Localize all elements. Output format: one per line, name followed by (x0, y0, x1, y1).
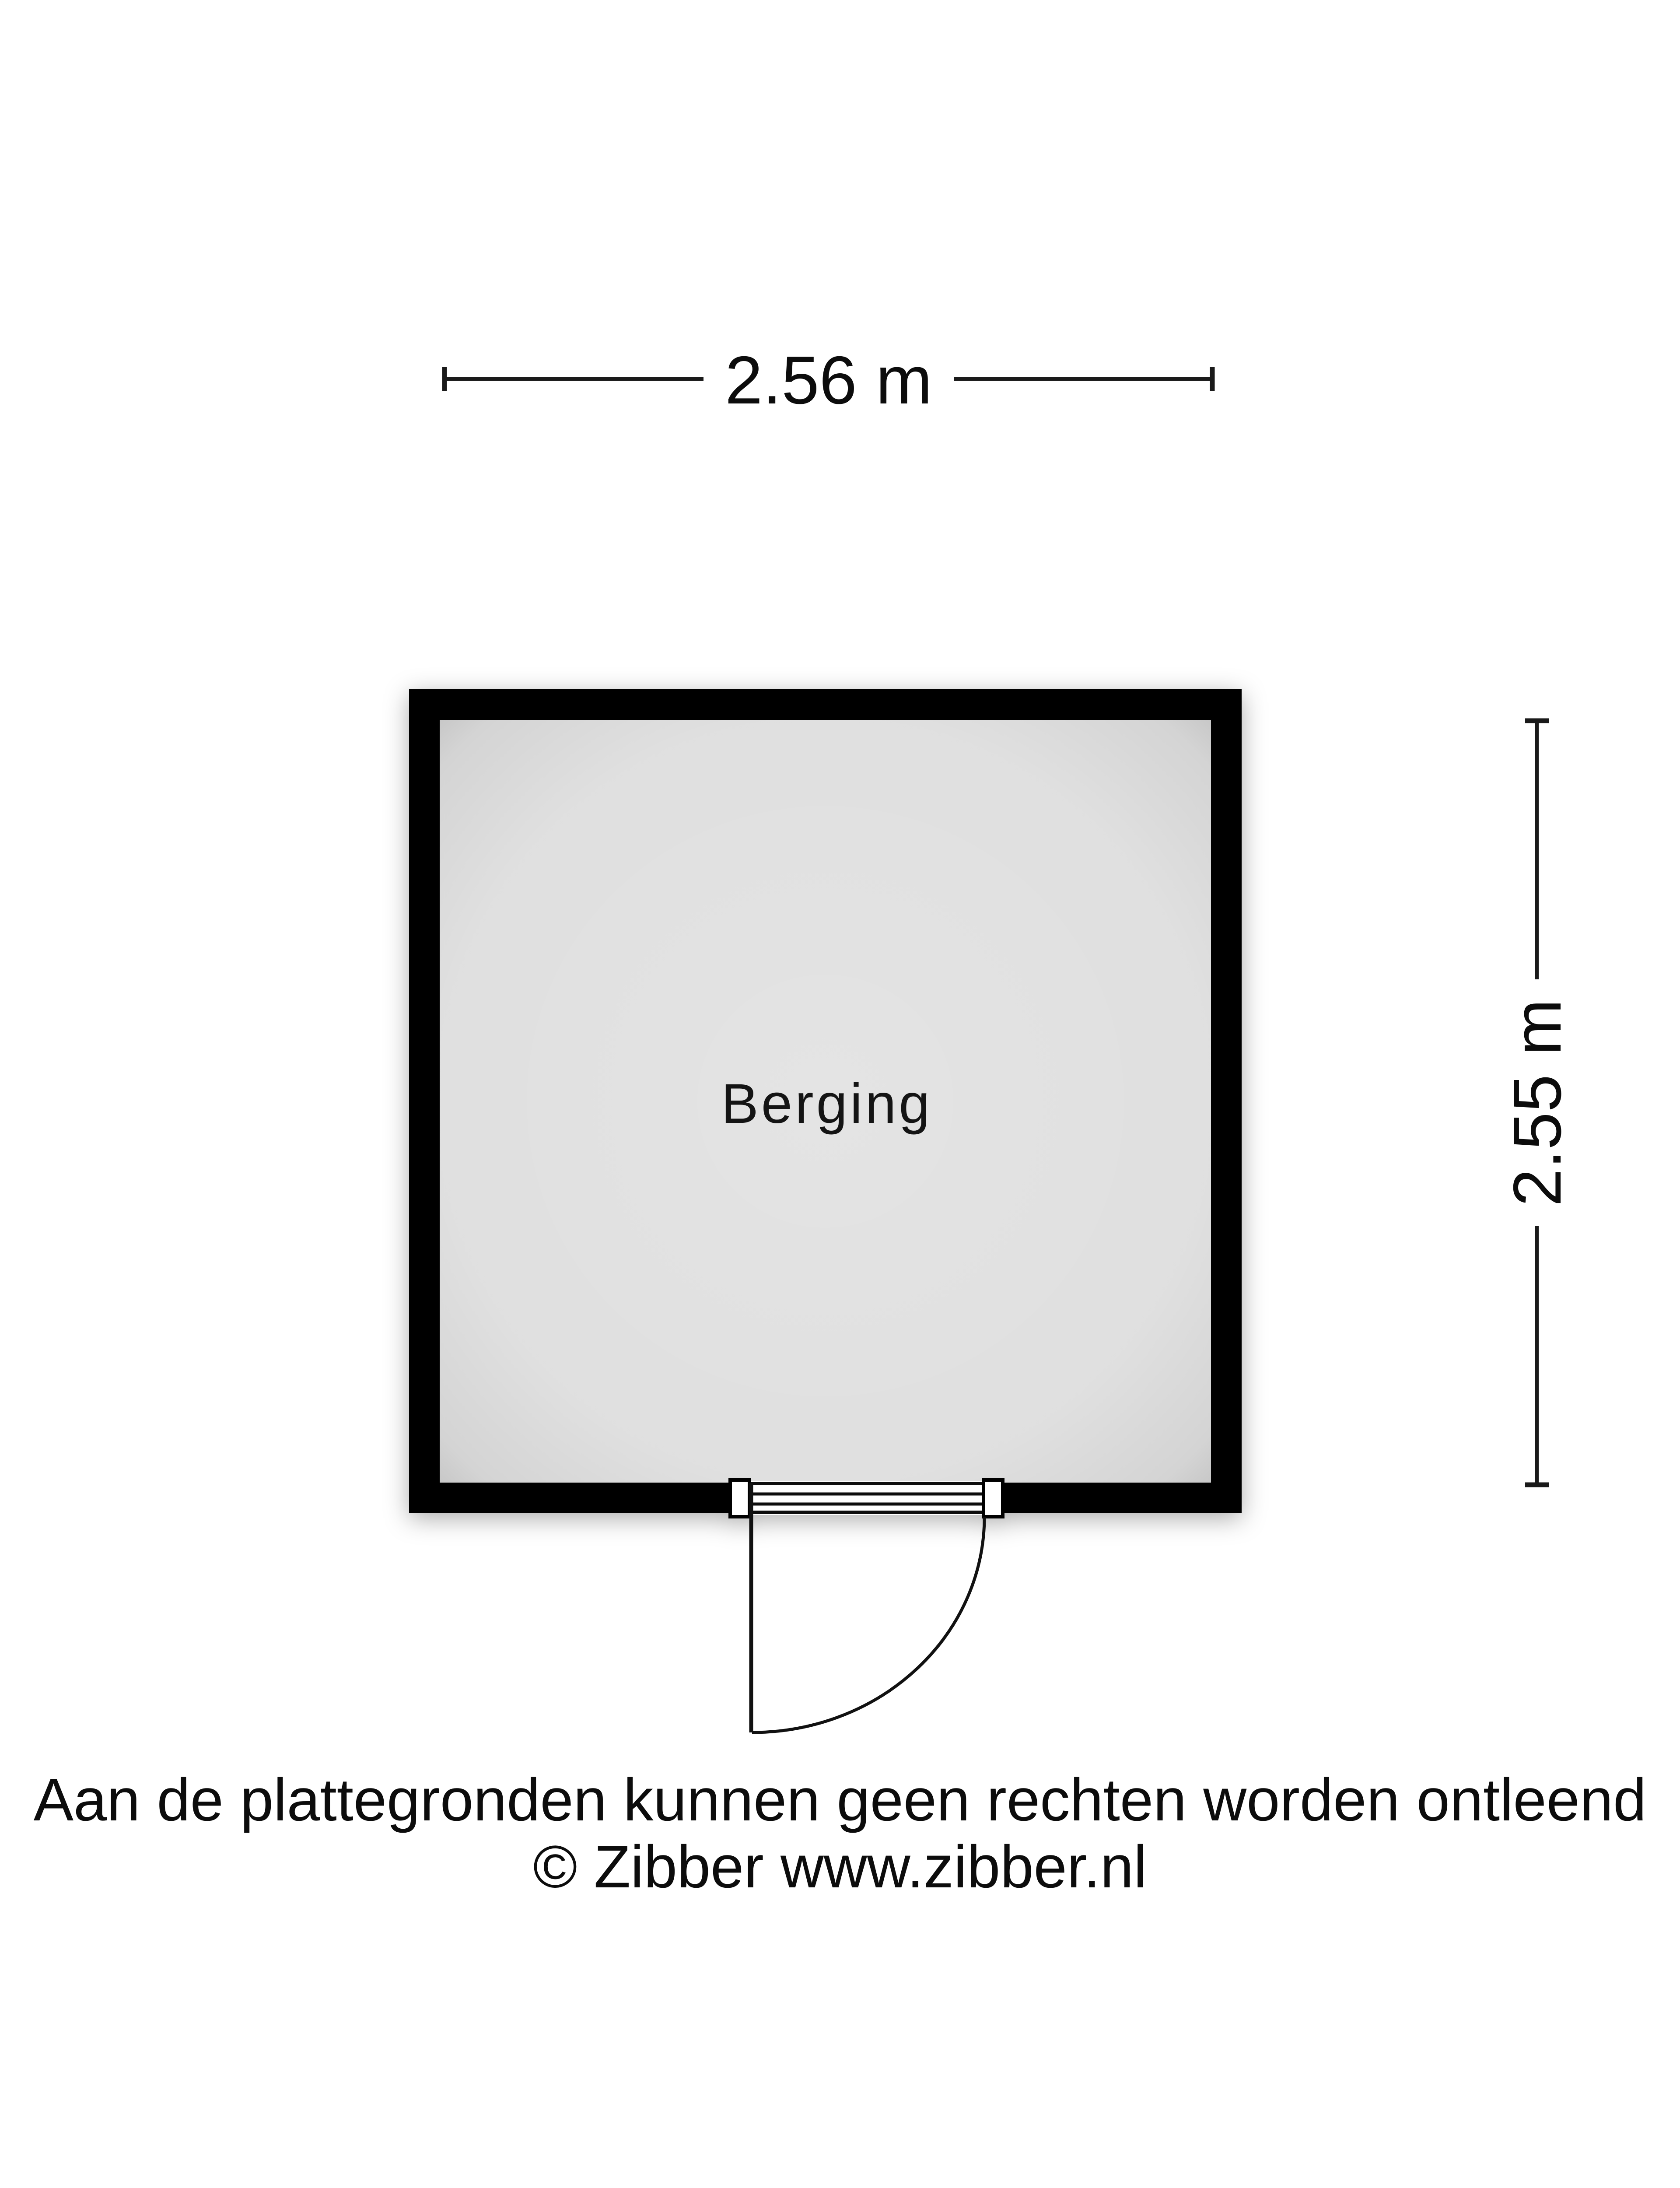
dimension-height: 2.55 m (1499, 721, 1575, 1485)
door (751, 1483, 984, 1732)
floorplan-page: 2.56 m 2.55 m (0, 0, 1680, 2188)
door-jamb-right (983, 1480, 1003, 1517)
door-jamb-left (730, 1480, 749, 1517)
floorplan-canvas: 2.56 m 2.55 m (0, 0, 1680, 2188)
disclaimer-line2: © Zibber www.zibber.nl (533, 1834, 1147, 1900)
door-opening (749, 1481, 983, 1515)
room-label: Berging (721, 1073, 932, 1135)
disclaimer: Aan de plattegronden kunnen geen rechten… (34, 1767, 1647, 1900)
dimension-height-label: 2.55 m (1499, 999, 1575, 1206)
dimension-width: 2.56 m (444, 342, 1212, 418)
door-swing-arc (752, 1517, 984, 1732)
dimension-width-label: 2.56 m (725, 342, 932, 418)
disclaimer-line1: Aan de plattegronden kunnen geen rechten… (34, 1767, 1647, 1834)
